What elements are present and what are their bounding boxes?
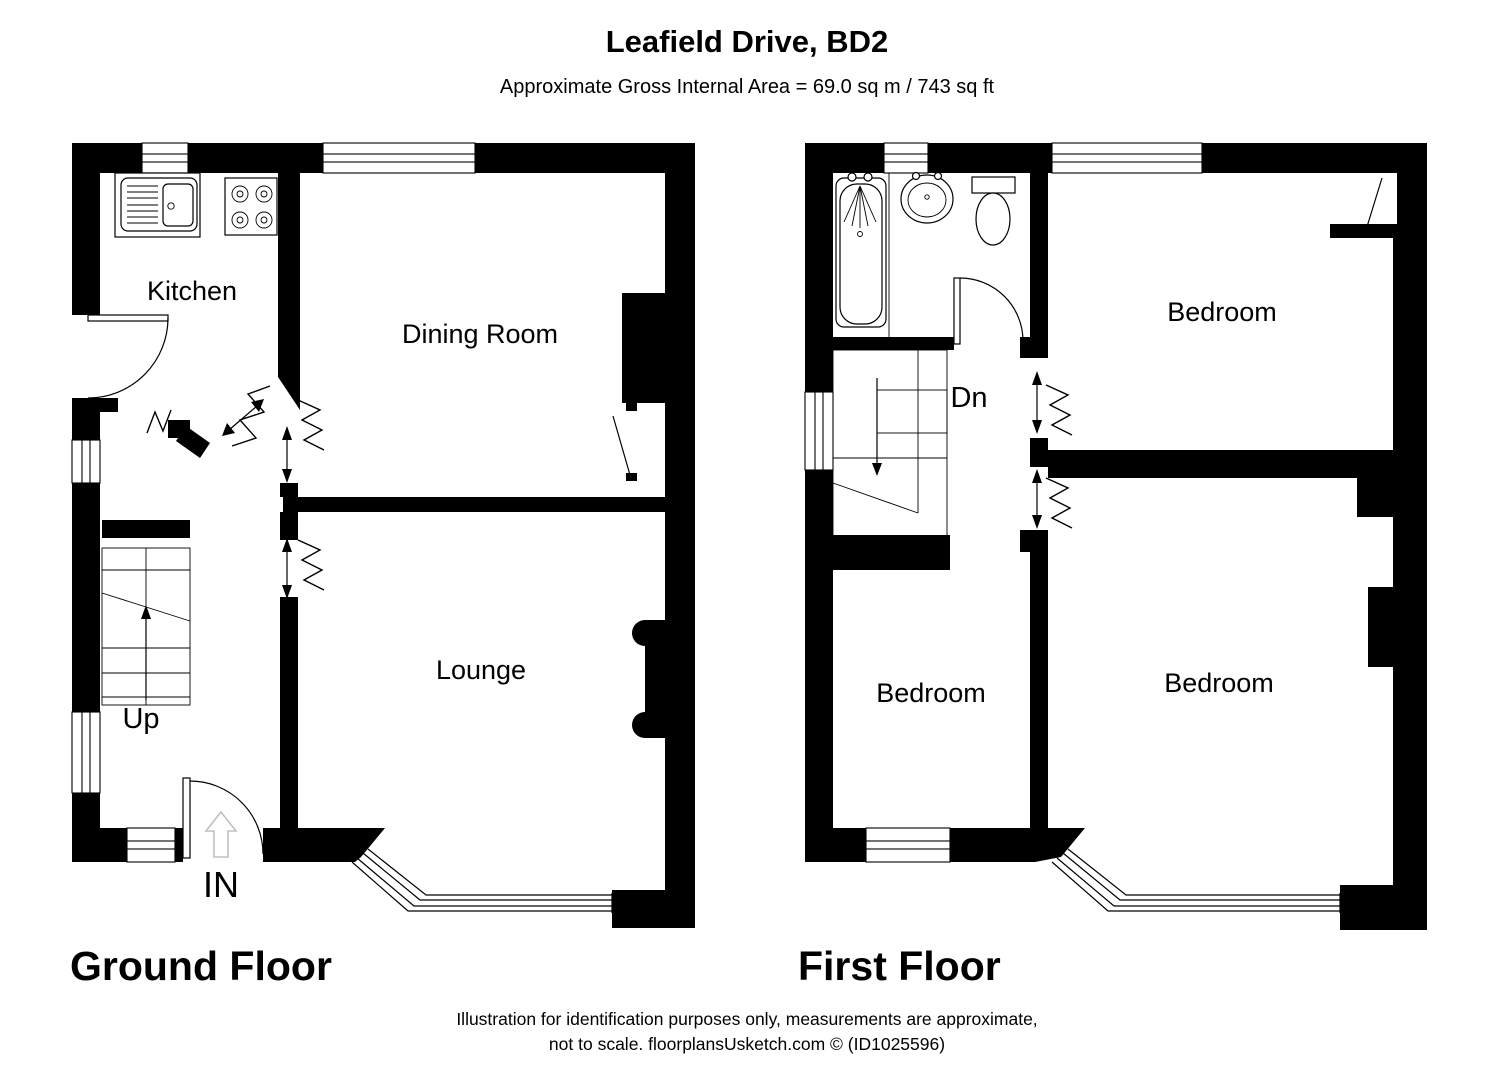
floorplan-canvas: Leafield Drive, BD2 Approximate Gross In… [0,0,1495,1080]
first-floor-walls [805,143,1427,930]
chimney-breast [622,293,665,403]
bay-window [1052,849,1340,913]
opening-symbol [147,410,171,433]
chimney-breast [632,620,665,738]
stairs-down-label: Dn [950,382,987,414]
door-arc [954,278,1023,344]
room-label-dining-room: Dining Room [402,319,558,349]
room-label-bedroom-left: Bedroom [876,678,986,708]
ground-floor-label: Ground Floor [70,943,332,989]
ground-floor-plan [72,143,695,928]
opening-symbol [282,400,324,483]
chimney-breast [1368,587,1427,667]
first-floor-label: First Floor [798,943,1001,989]
toilet-icon [972,177,1015,245]
disclaimer-line2: not to scale. floorplansUsketch.com © (I… [549,1034,945,1054]
opening-symbol [1032,371,1072,435]
stairs-up-label: Up [122,703,159,735]
ground-floor-walls [72,143,695,928]
entrance-label: IN [203,864,239,905]
page-title: Leafield Drive, BD2 [606,24,889,59]
cupboard-door [613,416,630,475]
page-subtitle: Approximate Gross Internal Area = 69.0 s… [500,76,995,98]
sink-icon [115,173,200,237]
room-label-lounge: Lounge [436,655,526,685]
window [142,143,188,173]
room-label-kitchen: Kitchen [147,276,237,306]
first-floor-plan [805,143,1427,930]
opening-symbol [222,386,270,446]
bay-window [352,849,612,913]
bay-corner-wall [1340,885,1427,930]
room-label-bedroom-right: Bedroom [1164,668,1274,698]
disclaimer-line1: Illustration for identification purposes… [456,1009,1037,1029]
window [884,143,928,173]
window [323,143,475,173]
staircase-down [833,350,947,537]
bath-icon [836,173,886,327]
opening-symbol [282,538,324,599]
window [127,828,175,862]
basin-icon [901,173,953,224]
window [805,392,833,470]
bay-corner-wall [612,890,695,928]
room-label-bedroom-top: Bedroom [1167,297,1277,327]
window [72,712,100,793]
window [72,440,100,483]
hob-icon [225,178,277,235]
window [866,828,950,862]
staircase-up [102,548,190,705]
window [1052,143,1202,173]
